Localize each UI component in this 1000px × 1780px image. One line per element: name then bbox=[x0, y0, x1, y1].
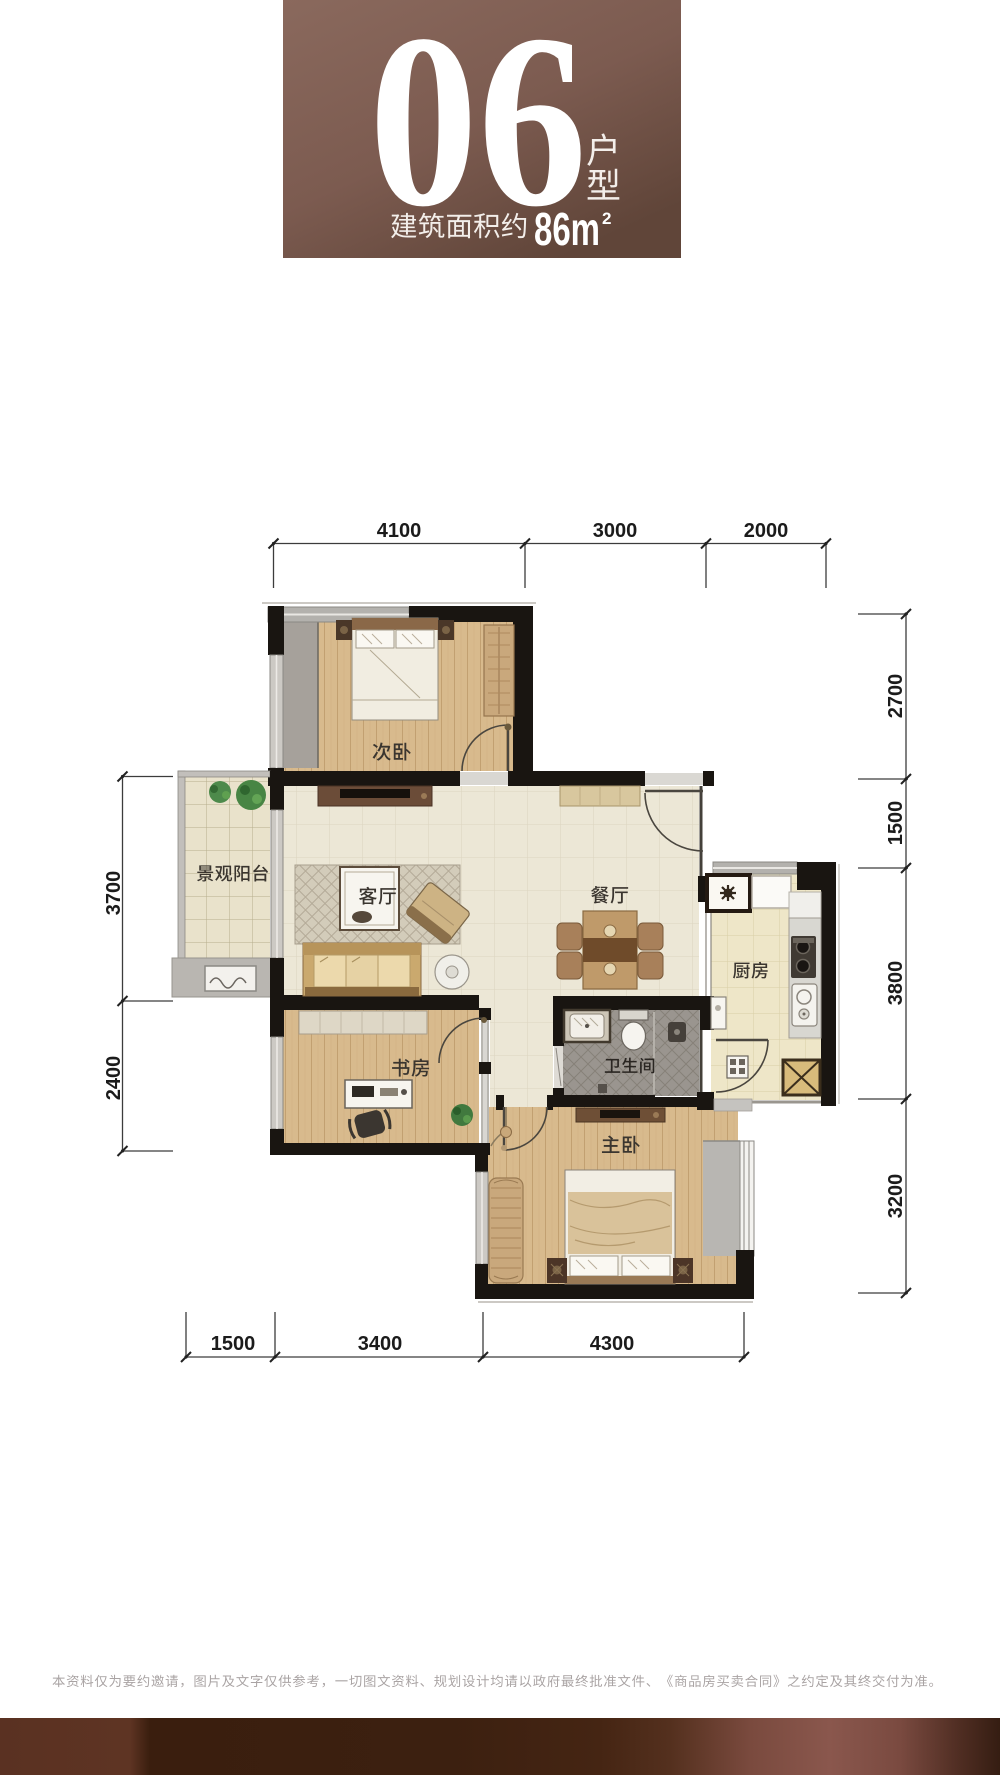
svg-text:4100: 4100 bbox=[377, 520, 422, 542]
svg-text:3700: 3700 bbox=[103, 871, 125, 916]
svg-text:86m: 86m bbox=[534, 203, 600, 255]
svg-text:4300: 4300 bbox=[590, 1333, 635, 1355]
svg-text:2400: 2400 bbox=[103, 1056, 125, 1101]
svg-text:2: 2 bbox=[602, 209, 611, 228]
svg-text:1500: 1500 bbox=[211, 1333, 256, 1355]
svg-text:2700: 2700 bbox=[885, 674, 907, 719]
svg-text:3200: 3200 bbox=[885, 1174, 907, 1219]
svg-text:2000: 2000 bbox=[744, 520, 789, 542]
svg-text:3400: 3400 bbox=[358, 1333, 403, 1355]
svg-text:3800: 3800 bbox=[885, 961, 907, 1006]
svg-text:1500: 1500 bbox=[885, 801, 907, 846]
svg-text:3000: 3000 bbox=[593, 520, 638, 542]
